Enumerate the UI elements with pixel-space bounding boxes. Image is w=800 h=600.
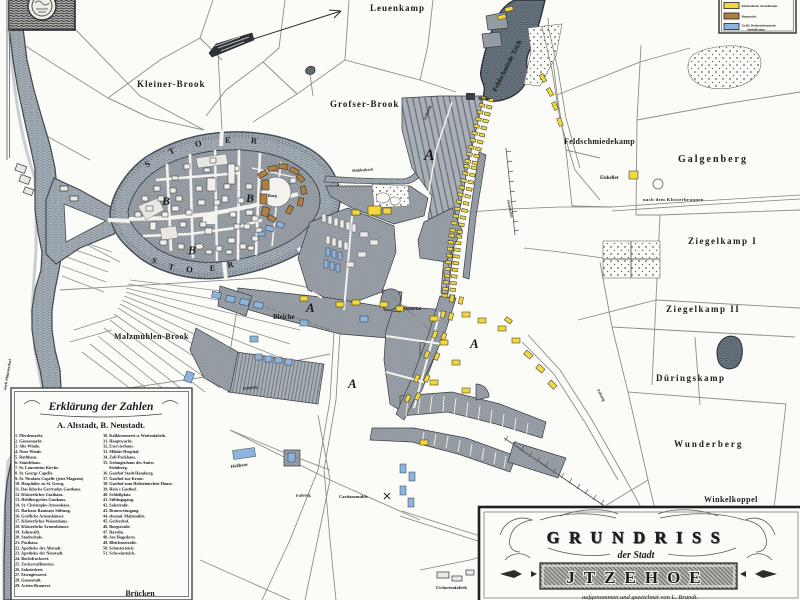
svg-text:35. Gefangenhaus des Amtes: 35. Gefangenhaus des Amtes [103,460,154,465]
svg-text:A: A [423,147,435,164]
svg-text:Kleiner-Brook: Kleiner-Brook [137,79,206,89]
svg-text:Klosterhof: Klosterhof [403,306,422,311]
svg-text:O: O [186,264,194,274]
svg-text:Brücken: Brücken [125,589,155,598]
svg-text:42. Salzstraße.: 42. Salzstraße. [103,503,129,508]
svg-text:49. Bleichenstraße.: 49. Bleichenstraße. [103,540,137,545]
svg-text:44. ehemal. Malzmühle.: 44. ehemal. Malzmühle. [103,513,145,518]
svg-text:Burg: Burg [268,193,277,198]
svg-text:Eiskeller: Eiskeller [600,176,620,181]
svg-text:Klösterliche Jurisdiction.: Klösterliche Jurisdiction. [742,4,779,8]
svg-text:2. Gänsemarkt.: 2. Gänsemarkt. [15,438,43,443]
svg-text:3. Alte Winde.: 3. Alte Winde. [15,444,40,449]
svg-text:Wunderberg: Wunderberg [674,439,743,449]
svg-text:B: B [245,191,254,205]
svg-text:nach dem Klosterbrunnen: nach dem Klosterbrunnen [643,197,704,202]
svg-text:16. Gräfliche Armenhäuser.: 16. Gräfliche Armenhäuser. [15,513,64,518]
svg-text:GRUNDRISS: GRUNDRISS [547,528,730,547]
svg-text:JTZEHOE: JTZEHOE [566,568,709,587]
svg-text:Fußsteig: Fußsteig [296,492,311,498]
svg-text:Winkelkoppel: Winkelkoppel [704,495,758,504]
svg-text:48. Am Hagedorn.: 48. Am Hagedorn. [103,535,136,540]
svg-text:50. Schusterteich.: 50. Schusterteich. [103,545,135,550]
svg-text:29. Actien-Brauerei.: 29. Actien-Brauerei. [15,583,51,588]
svg-text:23. Apotheke der Neustadt.: 23. Apotheke der Neustadt. [15,551,63,556]
svg-text:51. Schweinsteich.: 51. Schweinsteich. [103,551,135,556]
svg-text:37. Gasthof zur Krone.: 37. Gasthof zur Krone. [103,476,144,481]
svg-text:6. Ständehaus.: 6. Ständehaus. [15,460,41,465]
svg-text:39. Hein's Gasthof.: 39. Hein's Gasthof. [103,487,137,492]
svg-text:Ziegelkamp II: Ziegelkamp II [666,304,740,314]
svg-text:A. Altstadt, B. Neustadt.: A. Altstadt, B. Neustadt. [57,420,145,430]
svg-text:18. Klösterliche Armenhäuser.: 18. Klösterliche Armenhäuser. [15,524,69,529]
svg-text:1. Pferdemarkt.: 1. Pferdemarkt. [15,433,43,438]
svg-text:22. Apotheke der Altstadt.: 22. Apotheke der Altstadt. [15,545,62,550]
svg-text:Bleiche: Bleiche [273,313,295,321]
svg-text:A: A [305,300,315,315]
svg-text:24. Buchdruckerei.: 24. Buchdruckerei. [15,556,49,561]
svg-text:47. Ravelin.: 47. Ravelin. [103,529,124,534]
svg-text:A: A [347,376,357,391]
svg-text:14. St. Christophs-Armenhaus.: 14. St. Christophs-Armenhaus. [15,503,70,508]
svg-text:45. Gerberhof.: 45. Gerberhof. [103,519,129,524]
svg-text:E: E [225,135,231,145]
svg-text:Mühle: Mühle [478,96,491,101]
svg-text:5. Rathhaus.: 5. Rathhaus. [15,454,37,459]
svg-text:11. Das lübsche Gertruden Gast: 11. Das lübsche Gertruden Gasthaus. [15,487,81,492]
svg-text:B: B [161,194,170,208]
svg-text:B: B [187,243,196,257]
svg-text:15. Barbara Rantzaus Stiftung.: 15. Barbara Rantzaus Stiftung. [15,508,71,513]
svg-text:43. Brantweinsgang.: 43. Brantweinsgang. [103,508,139,513]
svg-text:Erklärung der Zahlen: Erklärung der Zahlen [48,401,154,413]
svg-text:13. Heldbergsches Gasthaus.: 13. Heldbergsches Gasthaus. [15,497,66,502]
svg-text:Grofser-Brook: Grofser-Brook [330,99,399,109]
svg-text:A: A [469,336,479,351]
svg-text:Malzmühlen-Brook: Malzmühlen-Brook [114,332,189,341]
svg-text:Burgrecht.: Burgrecht. [742,15,758,19]
svg-text:30. Kalkbrennerei u. Wattenfab: 30. Kalkbrennerei u. Wattenfabrik. [103,433,166,438]
svg-text:Steinburg.: Steinburg. [109,465,128,470]
svg-text:4. Neue Winde.: 4. Neue Winde. [15,449,42,454]
svg-text:38. Gasthof zum Holsteinischen: 38. Gasthof zum Holsteinischen-Hause. [103,481,173,486]
svg-text:aufgenommen und gezeichnet von: aufgenommen und gezeichnet von L. Brandt… [582,594,698,600]
svg-text:36. Gasthof Stadt Hamburg.: 36. Gasthof Stadt Hamburg. [103,470,154,475]
svg-text:19. Julienstift.: 19. Julienstift. [15,529,40,534]
svg-text:Ziegelkamp I: Ziegelkamp I [688,236,757,246]
svg-text:7. St. Laurentius Kirche.: 7. St. Laurentius Kirche. [15,465,59,470]
svg-text:der Stadt: der Stadt [618,550,656,561]
svg-text:40. Schloßplatz.: 40. Schloßplatz. [103,492,131,497]
svg-text:Galgenberg: Galgenberg [678,154,748,165]
svg-text:31. Hauptwache.: 31. Hauptwache. [103,438,133,443]
svg-text:20. Stadtschule.: 20. Stadtschule. [15,535,43,540]
svg-text:28. Gasanstalt.: 28. Gasanstalt. [15,577,41,582]
svg-text:46. Burgstraße.: 46. Burgstraße. [103,524,131,529]
svg-text:Cichorienfabrik: Cichorienfabrik [436,585,467,590]
svg-text:33. Militär-Hospital.: 33. Militär-Hospital. [103,449,139,454]
svg-text:8. St. Georgs Capelle.: 8. St. Georgs Capelle. [15,470,53,475]
svg-text:12. Klösterliches Gasthaus.: 12. Klösterliches Gasthaus. [15,492,63,497]
svg-text:Cartiansmühle: Cartiansmühle [339,494,368,499]
svg-text:Leuenkamp: Leuenkamp [370,3,425,13]
svg-text:32. Exercierhaus.: 32. Exercierhaus. [103,444,134,449]
svg-text:10. Hospitäler zu St. Georg.: 10. Hospitäler zu St. Georg. [15,481,64,486]
svg-text:17. Klösterliches Waisenhaus.: 17. Klösterliches Waisenhaus. [15,519,68,524]
svg-text:21. Posthaus.: 21. Posthaus. [15,540,38,545]
svg-text:25. Zuckerraffinerien.: 25. Zuckerraffinerien. [15,561,55,566]
svg-text:34. Zoll-Packhaus.: 34. Zoll-Packhaus. [103,454,136,459]
svg-text:27. Eisengiesserei.: 27. Eisengiesserei. [15,572,47,577]
svg-text:26. Salzsiederei.: 26. Salzsiederei. [15,567,43,572]
svg-text:Jurisdiction.: Jurisdiction. [747,28,765,32]
svg-text:41. Stiftingsgang.: 41. Stiftingsgang. [103,497,134,502]
svg-text:Düringskamp: Düringskamp [656,373,726,383]
svg-text:Feldschmiedekamp: Feldschmiedekamp [564,137,635,146]
svg-text:9. St. Nicolaus Capelle (jetzt: 9. St. Nicolaus Capelle (jetzt Magazin) [15,476,84,481]
